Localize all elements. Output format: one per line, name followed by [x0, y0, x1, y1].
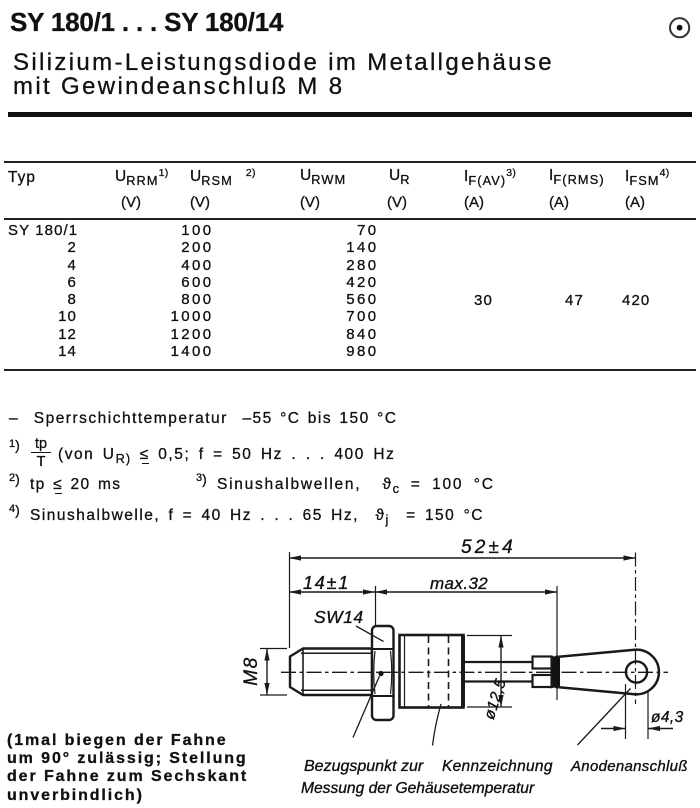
- svg-text:max.32: max.32: [430, 574, 488, 593]
- svg-text:ø12,5: ø12,5: [481, 677, 510, 722]
- svg-text:ø4,3: ø4,3: [651, 709, 684, 726]
- svg-text:14±1: 14±1: [303, 573, 350, 593]
- svg-text:52±4: 52±4: [461, 537, 516, 558]
- svg-text:SW14: SW14: [314, 607, 364, 627]
- svg-text:Messung der Gehäusetemperatur: Messung der Gehäusetemperatur: [301, 780, 535, 797]
- svg-text:Anodenanschluß: Anodenanschluß: [570, 758, 688, 775]
- svg-text:Bezugspunkt zur: Bezugspunkt zur: [304, 758, 424, 775]
- svg-text:M8: M8: [241, 656, 262, 685]
- svg-text:Kennzeichnung: Kennzeichnung: [442, 758, 553, 775]
